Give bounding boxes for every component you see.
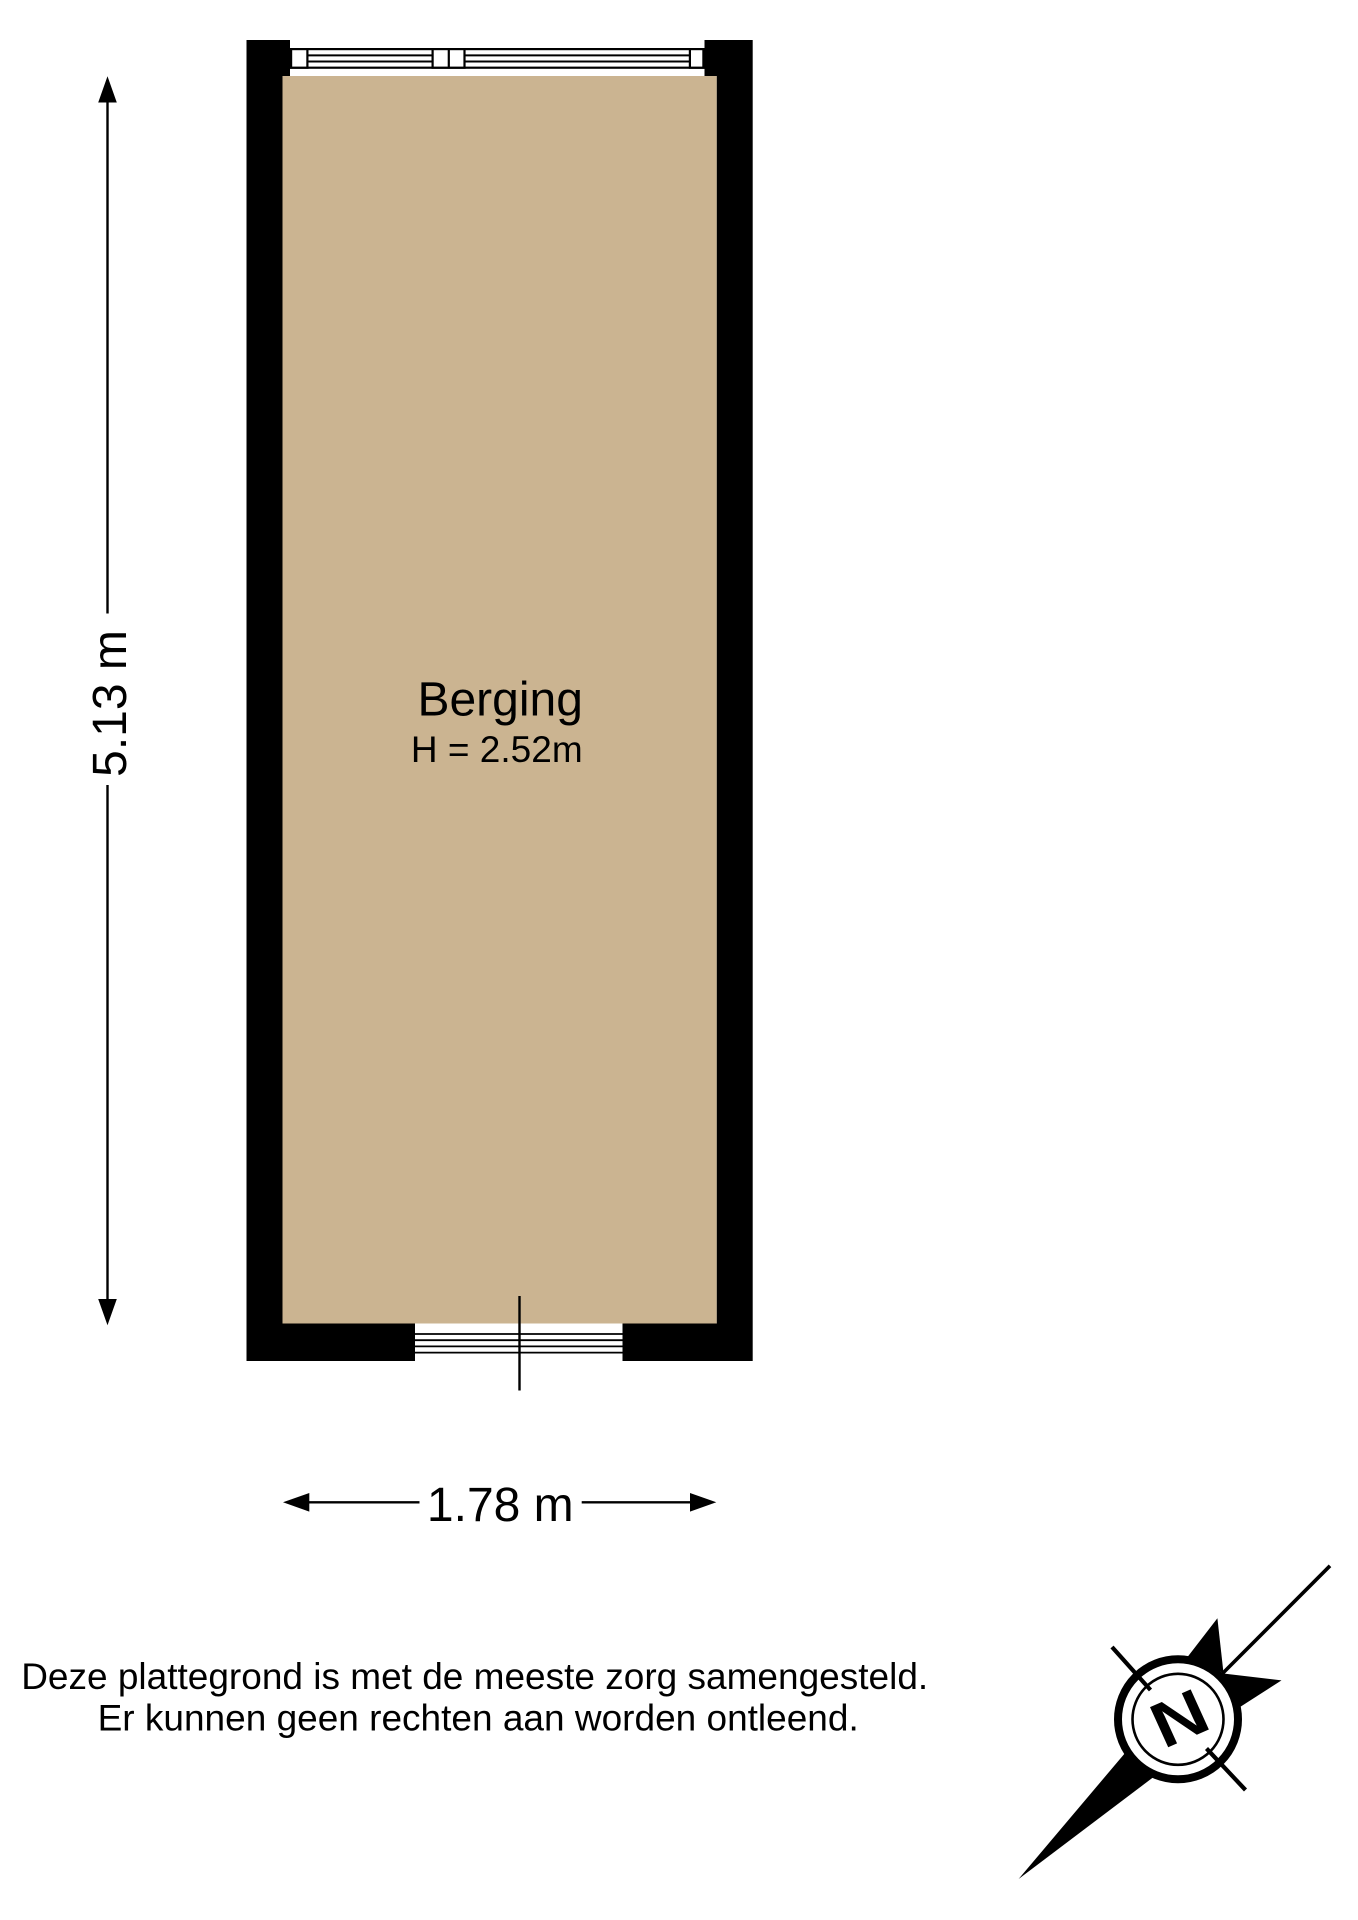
svg-text:Er kunnen geen rechten aan wor: Er kunnen geen rechten aan worden ontlee…	[98, 1698, 859, 1739]
svg-text:Deze plattegrond is met de mee: Deze plattegrond is met de meeste zorg s…	[21, 1656, 928, 1697]
svg-text:H = 2.52m: H = 2.52m	[411, 729, 583, 770]
svg-text:1.78 m: 1.78 m	[427, 1479, 574, 1532]
svg-text:5.13 m: 5.13 m	[84, 630, 137, 777]
svg-text:Berging: Berging	[417, 674, 582, 727]
